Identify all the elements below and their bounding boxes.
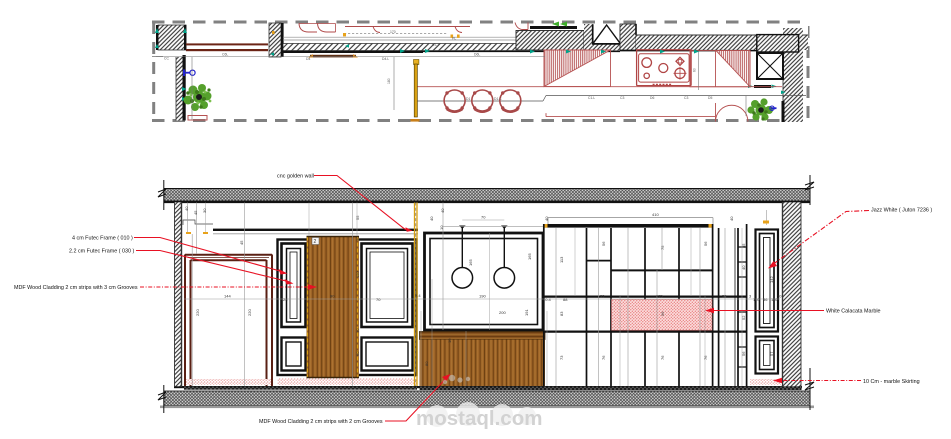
svg-text:40: 40: [184, 206, 189, 211]
svg-text:80: 80: [424, 361, 429, 366]
svg-text:40: 40: [544, 216, 549, 221]
svg-text:76: 76: [703, 355, 708, 360]
svg-text:10: 10: [439, 225, 444, 230]
svg-text:10: 10: [355, 328, 360, 333]
svg-text:56: 56: [741, 351, 746, 356]
svg-text:33: 33: [600, 294, 605, 299]
svg-text:10.4: 10.4: [543, 297, 552, 302]
svg-text:88: 88: [563, 297, 568, 302]
svg-text:C.L1: C.L1: [432, 43, 439, 47]
svg-text:2.2 cm Futec Frame ( 030 ): 2.2 cm Futec Frame ( 030 ): [69, 249, 135, 255]
svg-text:D6: D6: [650, 96, 654, 100]
svg-text:28: 28: [283, 297, 288, 302]
svg-text:180: 180: [387, 78, 391, 84]
svg-text:MDF Wood Cladding 2 cm strips: MDF Wood Cladding 2 cm strips with 3 cm …: [14, 285, 138, 291]
svg-text:PL: PL: [452, 37, 456, 41]
svg-text:36: 36: [763, 297, 768, 302]
svg-text:D6L: D6L: [474, 53, 480, 57]
svg-text:40: 40: [440, 208, 445, 213]
svg-text:191: 191: [524, 309, 529, 316]
svg-text:D1.C: D1.C: [494, 97, 502, 101]
svg-text:75: 75: [660, 245, 665, 250]
svg-text:70: 70: [376, 297, 381, 302]
svg-text:165: 165: [468, 259, 473, 266]
svg-text:170: 170: [390, 30, 396, 34]
svg-text:55: 55: [355, 215, 360, 220]
svg-text:142: 142: [769, 276, 774, 283]
svg-text:73: 73: [559, 355, 564, 360]
svg-text:83: 83: [559, 311, 564, 316]
svg-text:52: 52: [741, 315, 746, 320]
svg-text:150: 150: [355, 271, 360, 278]
svg-text:60: 60: [355, 351, 360, 356]
svg-text:2: 2: [314, 239, 317, 245]
svg-text:56: 56: [601, 241, 606, 246]
svg-text:76: 76: [660, 355, 665, 360]
svg-text:Jazz White ( Juton 7236 ): Jazz White ( Juton 7236 ): [871, 208, 932, 214]
svg-text:MDF Wood Cladding 2 cm strips: MDF Wood Cladding 2 cm strips with 2 cm …: [259, 419, 383, 425]
svg-text:45: 45: [741, 243, 746, 248]
svg-text:165: 165: [527, 253, 532, 260]
svg-text:220: 220: [195, 309, 200, 316]
svg-text:175: 175: [656, 294, 663, 299]
svg-text:45: 45: [239, 240, 244, 245]
svg-text:45: 45: [193, 210, 198, 215]
svg-text:10: 10: [777, 294, 782, 299]
svg-text:33: 33: [722, 294, 727, 299]
svg-text:56: 56: [703, 241, 708, 246]
svg-text:2.4: 2.4: [415, 293, 421, 298]
svg-text:3: 3: [749, 294, 752, 299]
svg-text:40: 40: [429, 216, 434, 221]
svg-text:30: 30: [202, 208, 207, 213]
svg-text:4 cm Futec Frame ( 010 ): 4 cm Futec Frame ( 010 ): [72, 236, 133, 242]
svg-text:C1.L: C1.L: [588, 96, 595, 100]
svg-text:410: 410: [652, 212, 659, 217]
svg-text:White Calacata Marble: White Calacata Marble: [826, 309, 881, 315]
svg-text:56: 56: [660, 311, 665, 316]
svg-text:90: 90: [330, 294, 335, 299]
svg-text:220: 220: [247, 309, 252, 316]
svg-text:CC: CC: [164, 57, 169, 61]
svg-text:113: 113: [559, 256, 564, 263]
svg-text:mostaql.com: mostaql.com: [416, 407, 542, 430]
svg-text:D4: D4: [306, 57, 310, 61]
svg-text:144: 144: [224, 294, 231, 299]
svg-text:40: 40: [729, 216, 734, 221]
svg-text:cnc golden wall: cnc golden wall: [277, 174, 314, 180]
svg-text:10: 10: [447, 338, 452, 343]
svg-text:60: 60: [693, 68, 697, 72]
svg-text:40: 40: [741, 265, 746, 270]
svg-text:70: 70: [481, 215, 486, 220]
svg-text:30: 30: [355, 236, 360, 241]
svg-text:110: 110: [753, 297, 760, 302]
svg-text:57: 57: [769, 351, 774, 356]
svg-text:190: 190: [479, 294, 486, 299]
svg-text:C3: C3: [620, 96, 624, 100]
svg-text:C6L: C6L: [222, 53, 228, 57]
svg-text:10 Cm - marble Skirting: 10 Cm - marble Skirting: [863, 379, 920, 385]
svg-text:D5: D5: [708, 96, 712, 100]
svg-text:200: 200: [499, 310, 506, 315]
svg-text:C3: C3: [684, 96, 688, 100]
svg-text:D1: D1: [466, 97, 470, 101]
svg-text:D4.L: D4.L: [382, 57, 389, 61]
svg-text:76: 76: [601, 355, 606, 360]
